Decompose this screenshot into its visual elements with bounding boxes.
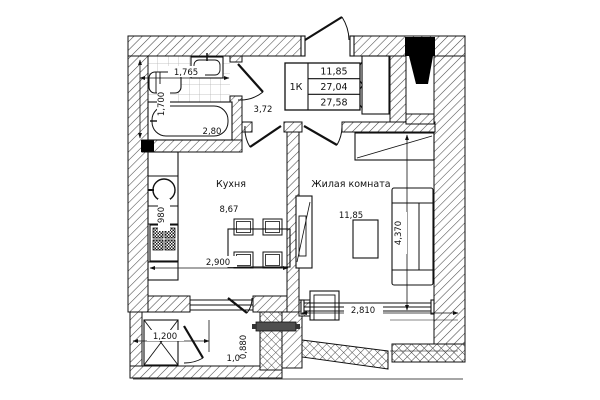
wall-top-left (128, 36, 303, 56)
living-room-furniture (296, 133, 434, 320)
stove-burner (153, 240, 163, 250)
stool-inner (266, 222, 280, 233)
window-jamb (301, 300, 304, 314)
bathroom-door-leaf (238, 64, 263, 92)
dim-kitchen-width: 2,900 (206, 258, 230, 268)
balcony-inner-door-arc (184, 358, 203, 363)
legend-total-area-with-balcony: 27,58 (320, 98, 347, 109)
kitchen-name-label: Кухня (216, 179, 246, 190)
wall-bathroom-south (142, 140, 242, 152)
dim-counter-depth: 980 (157, 207, 167, 223)
door-jamb (350, 36, 354, 56)
wall-hall-south-pier-left (242, 122, 252, 132)
wall-balcony-bottom (130, 366, 282, 378)
entrance-door-leaf (305, 17, 342, 40)
radiator (256, 322, 296, 331)
vent-shaft (405, 37, 435, 114)
wall-black-pier (141, 140, 154, 152)
vent-shaft-head (405, 37, 435, 56)
entrance-door-arc (342, 17, 349, 40)
balcony-inner-door-leaf (184, 326, 203, 358)
wall-bottom-right-band (392, 344, 465, 362)
wall-kitchen-south-right (253, 296, 287, 312)
legend-table: 1К 11,85 27,04 27,58 (285, 63, 360, 110)
legend-total-area: 27,04 (320, 82, 347, 93)
dim-balcony-width: 1,200 (153, 332, 177, 342)
dim-bathroom-width: 1,765 (174, 68, 198, 78)
wardrobe (355, 133, 434, 160)
wall-shaft-left (390, 56, 406, 122)
stool-inner (237, 222, 251, 233)
stove-burner (165, 240, 175, 250)
stool-inner (266, 255, 280, 266)
coffee-table (353, 220, 378, 258)
door-jamb (301, 36, 305, 56)
radiator-cap (296, 324, 300, 329)
dim-bathroom-depth: 1,700 (157, 92, 167, 116)
living-room-area-label: 11,85 (339, 211, 363, 221)
dim-living-width: 2,810 (351, 306, 375, 316)
dim-balcony-depth: 0,880 (239, 335, 249, 359)
living-room-door-leaf (304, 126, 337, 145)
wall-right (434, 56, 465, 346)
hallway-area-label: 3,72 (254, 105, 273, 115)
kitchen-door-leaf (250, 126, 281, 147)
wall-bath-door-cap (230, 56, 242, 62)
dim-living-depth: 4,370 (394, 221, 404, 245)
wall-left (128, 56, 148, 312)
wall-sloped-band (302, 340, 388, 369)
wall-below-partition (282, 312, 302, 368)
legend-living-area: 11,85 (320, 67, 347, 78)
wall-balcony-right (260, 312, 282, 370)
floor-plan-canvas: 1,765 1,700 2,80 980 2,900 1,200 1,07 0,… (0, 0, 600, 400)
wall-kitchen-south-left (148, 296, 190, 312)
living-room-name-label: Жилая комната (311, 179, 390, 190)
wall-hall-south-pier-center (284, 122, 302, 132)
closet-body (362, 56, 389, 114)
radiator-cap (252, 324, 256, 329)
legend-apartment-type: 1К (290, 82, 303, 93)
kitchen-window (190, 300, 253, 310)
floor-plan-drawing: 1,765 1,700 2,80 980 2,900 1,200 1,07 0,… (0, 0, 600, 400)
living-room-door-arc (337, 126, 342, 145)
stool-inner (237, 255, 251, 266)
bathroom-area-label: 2,80 (203, 127, 222, 137)
window-jamb (431, 300, 434, 314)
kitchen-area-label: 8,67 (220, 205, 239, 215)
